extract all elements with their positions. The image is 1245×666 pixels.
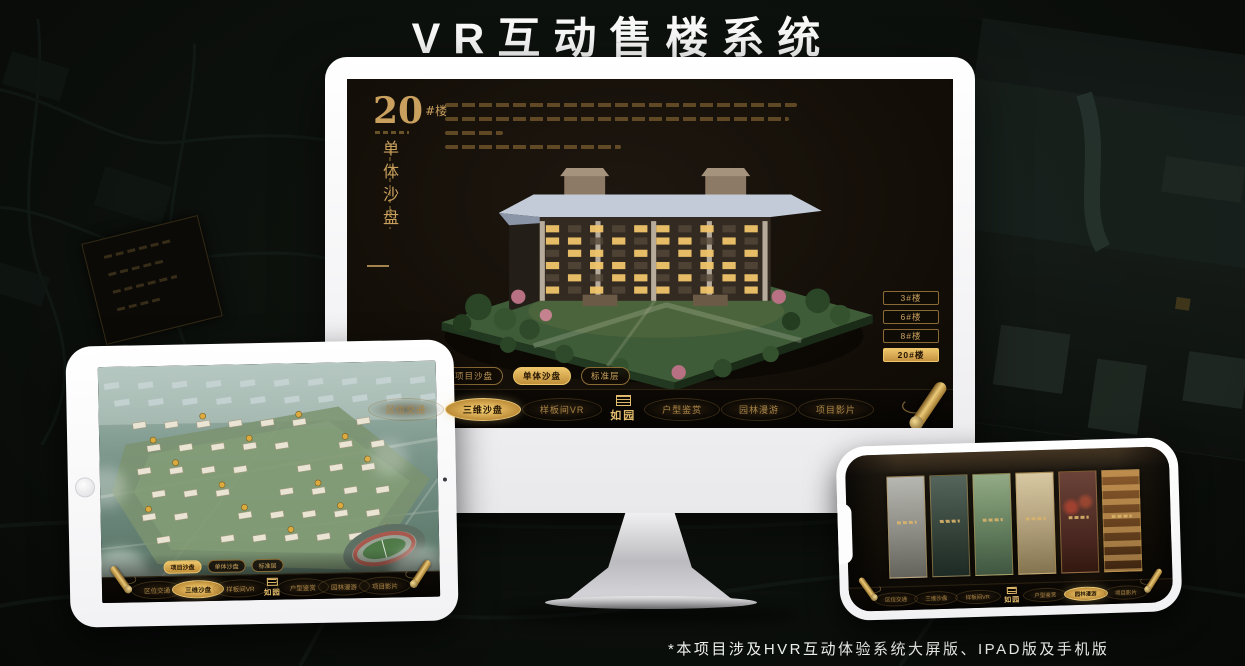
scene-panel[interactable] — [972, 473, 1013, 576]
tablet-home-button[interactable] — [75, 477, 95, 497]
nav-item-floorplan-gallery[interactable]: 户型鉴赏 — [284, 579, 322, 594]
subtab-single-sandbox[interactable]: 单体沙盘 — [513, 367, 571, 385]
scene-panel[interactable] — [886, 475, 927, 578]
nav-item-garden-tour[interactable]: 园林漫游 — [1070, 588, 1100, 599]
brand-logo: 如园 — [610, 395, 636, 423]
nav-item-garden-tour[interactable]: 园林漫游 — [325, 579, 363, 594]
scene-panel[interactable] — [1058, 470, 1099, 573]
nav-item-floorplan-gallery[interactable]: 户型鉴赏 — [1030, 589, 1060, 600]
scroll-decoration-icon[interactable] — [1141, 567, 1164, 595]
tablet-device: 项目沙盘 单体沙盘 标准层 区位交通 三维沙盘 样板间VR 如园 户型鉴赏 园林… — [65, 339, 458, 627]
monitor-shadow — [500, 606, 800, 624]
tablet-subtabs: 项目沙盘 单体沙盘 标准层 — [163, 559, 283, 574]
nav-item-model-room-vr[interactable]: 样板间VR — [961, 591, 993, 602]
nav-item-model-room-vr[interactable]: 样板间VR — [220, 581, 261, 596]
nav-item-model-room-vr[interactable]: 样板间VR — [529, 400, 596, 419]
subtab-standard-floor[interactable]: 标准层 — [581, 367, 630, 385]
seal-icon — [1007, 586, 1017, 593]
headline-english-caption — [375, 131, 409, 134]
nav-item-project-film[interactable]: 项目影片 — [366, 578, 404, 593]
scene-panel[interactable] — [1015, 472, 1056, 575]
tablet-camera-dot — [443, 477, 447, 481]
headline-vertical-english — [389, 143, 391, 229]
phone-screen: 区位交通 三维沙盘 样板间VR 如园 户型鉴赏 园林漫游 项目影片 — [845, 446, 1173, 612]
tablet-screen: 项目沙盘 单体沙盘 标准层 区位交通 三维沙盘 样板间VR 如园 户型鉴赏 园林… — [98, 361, 440, 603]
scene-panel[interactable] — [929, 474, 970, 577]
nav-item-location-traffic[interactable]: 区位交通 — [375, 400, 437, 419]
seal-icon — [267, 577, 278, 585]
building-3d-render — [411, 135, 881, 391]
phone-home-indicator[interactable] — [1170, 505, 1174, 543]
background-plaque — [81, 215, 223, 345]
floor-button-8[interactable]: 8#楼 — [883, 329, 939, 343]
tablet-bottom-nav: 区位交通 三维沙盘 样板间VR 如园 户型鉴赏 园林漫游 项目影片 — [102, 571, 440, 603]
promo-canvas: VR互动售楼系统 *本项目涉及HVR互动体验系统大屏版、IPAD版及手机版 20… — [0, 0, 1245, 666]
phone-device: 区位交通 三维沙盘 样板间VR 如园 户型鉴赏 园林漫游 项目影片 — [835, 437, 1182, 621]
seal-icon — [616, 395, 631, 406]
scroll-decoration-icon[interactable] — [407, 558, 434, 590]
nav-item-location-traffic[interactable]: 区位交通 — [881, 593, 911, 604]
headline-underline — [367, 257, 389, 267]
building-number-unit: #楼 — [425, 104, 447, 118]
floor-button-6[interactable]: 6#楼 — [883, 310, 939, 324]
nav-item-3d-sandbox[interactable]: 三维沙盘 — [921, 592, 951, 603]
subtab-project-sandbox[interactable]: 项目沙盘 — [163, 560, 201, 574]
brand-logo-text: 如园 — [610, 407, 636, 423]
subtab-standard-floor[interactable]: 标准层 — [251, 559, 283, 573]
subtab-single-sandbox[interactable]: 单体沙盘 — [207, 559, 245, 573]
building-number: 20 — [373, 90, 423, 132]
floor-button-20[interactable]: 20#楼 — [883, 348, 939, 362]
nav-item-floorplan-gallery[interactable]: 户型鉴赏 — [651, 400, 713, 419]
phone-notch — [837, 504, 853, 564]
nav-item-project-film[interactable]: 项目影片 — [805, 400, 867, 419]
nav-item-3d-sandbox[interactable]: 三维沙盘 — [179, 581, 217, 596]
scene-panel-gallery — [886, 469, 1142, 578]
scroll-menu-toggle-icon[interactable] — [905, 379, 950, 429]
scroll-decoration-icon[interactable] — [109, 564, 136, 596]
floor-button-3[interactable]: 3#楼 — [883, 291, 939, 305]
nav-item-location-traffic[interactable]: 区位交通 — [138, 582, 176, 597]
scroll-decoration-icon[interactable] — [857, 575, 880, 603]
brand-logo-text: 如园 — [1004, 594, 1020, 604]
monitor-subtabs: 项目沙盘 单体沙盘 标准层 — [445, 367, 630, 385]
nav-item-garden-tour[interactable]: 园林漫游 — [728, 400, 790, 419]
brand-logo: 如园 — [1004, 586, 1021, 604]
footnote-text: *本项目涉及HVR互动体验系统大屏版、IPAD版及手机版 — [668, 638, 1109, 659]
scene-panel[interactable] — [1101, 469, 1142, 572]
nav-item-project-film[interactable]: 项目影片 — [1111, 587, 1141, 598]
monitor-stand — [555, 513, 745, 601]
floor-button-group: 3#楼 6#楼 8#楼 20#楼 — [883, 291, 939, 362]
nav-item-3d-sandbox[interactable]: 三维沙盘 — [452, 400, 514, 419]
